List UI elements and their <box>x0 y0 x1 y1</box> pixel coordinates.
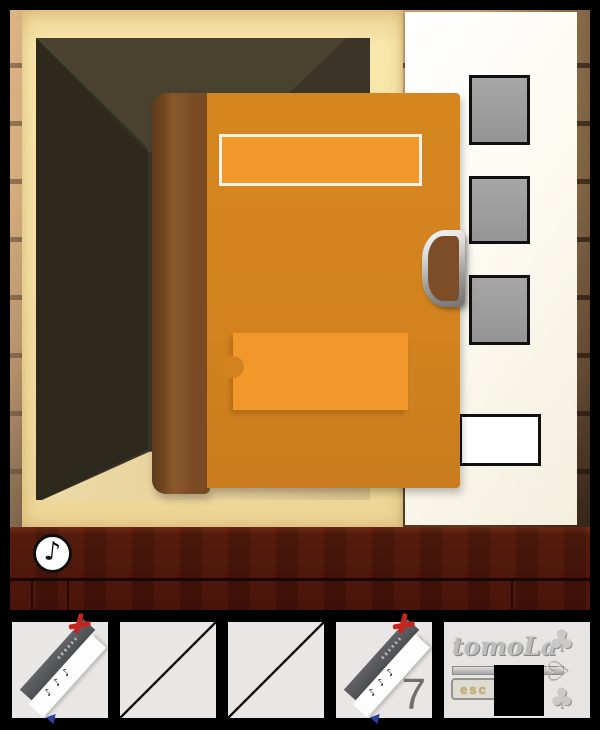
dresser-seam <box>31 581 33 610</box>
pocket-notch <box>222 356 244 378</box>
game-stage: ♪ ♪♪♪ ♪♪♪ <box>0 0 600 730</box>
brand-logo: tomoLa <box>452 632 557 661</box>
book-pocket[interactable] <box>233 333 408 410</box>
esc-button[interactable]: esc <box>451 678 497 700</box>
inventory-slot-2-empty[interactable] <box>120 622 216 718</box>
inventory-slot-1[interactable]: ♪♪♪ <box>12 622 108 718</box>
book-spine <box>152 93 210 494</box>
book-title-label[interactable] <box>219 134 422 186</box>
item-count: 7 <box>402 670 426 720</box>
music-note-icon: ♪ <box>43 536 63 568</box>
inventory-slot-4[interactable]: ♪♪♪ 7 <box>336 622 432 718</box>
blue-triangle-icon <box>370 711 383 724</box>
inventory-slot-3-empty[interactable] <box>228 622 324 718</box>
book-clasp-inner <box>428 236 459 301</box>
key-clover-icon: ♣ <box>548 624 575 659</box>
blue-triangle-icon <box>46 711 59 724</box>
inventory-slot-5-credit: tomoLa esc ♣ ♡ ♣ <box>444 622 590 718</box>
dresser <box>10 527 590 610</box>
orange-book[interactable] <box>152 93 460 488</box>
sound-toggle-button[interactable]: ♪ <box>33 534 72 573</box>
bookmark-item: ♪♪♪ <box>16 619 111 719</box>
black-cover-square <box>494 665 544 716</box>
book-clasp[interactable] <box>422 230 465 307</box>
key-heart-icon: ♡ <box>544 659 575 683</box>
esc-button-label: esc <box>460 682 488 697</box>
dresser-groove <box>10 578 590 581</box>
dresser-seam <box>67 581 69 610</box>
gray-square-1[interactable] <box>469 75 530 145</box>
white-card-slot[interactable] <box>459 414 541 466</box>
key-clover-icon: ♣ <box>549 682 574 715</box>
dresser-seam <box>511 581 513 610</box>
gray-square-3[interactable] <box>469 275 530 345</box>
inventory-bar: ♪♪♪ ♪♪♪ 7 tomoLa <box>0 610 600 730</box>
gray-square-2[interactable] <box>469 176 530 244</box>
